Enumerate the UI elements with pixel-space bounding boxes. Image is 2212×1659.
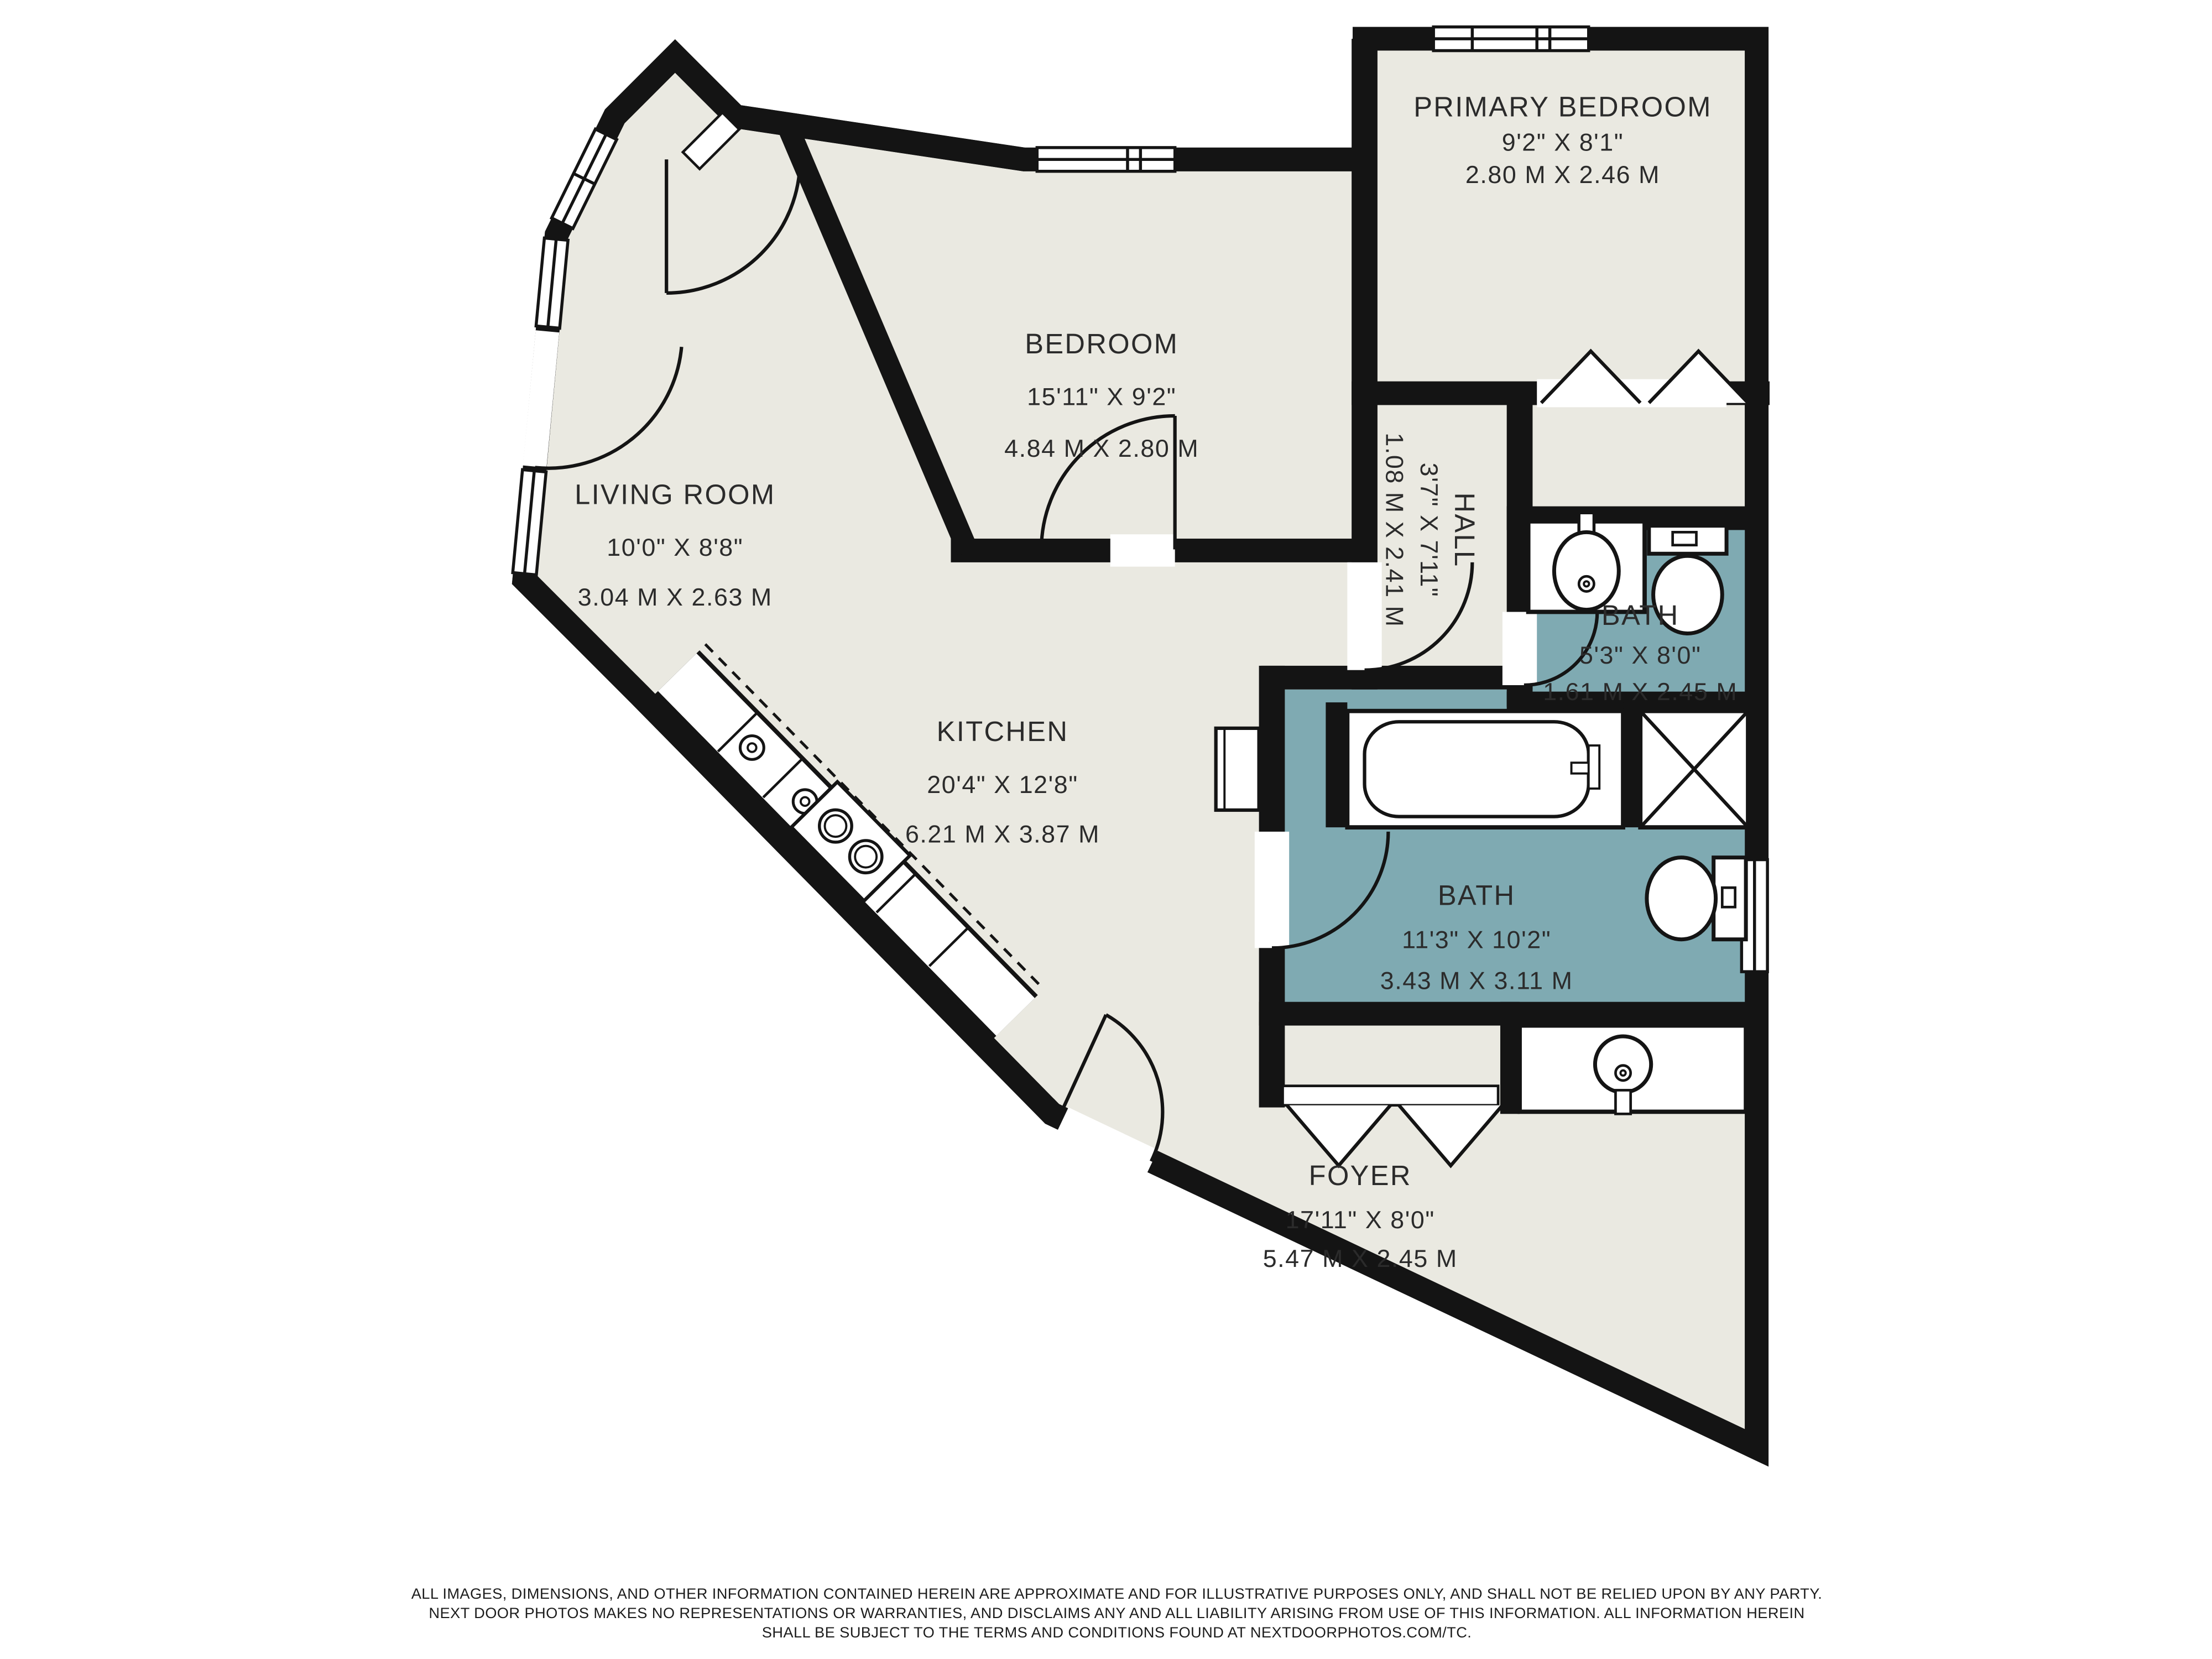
svg-text:15'11" X 9'2": 15'11" X 9'2" <box>1027 383 1176 410</box>
svg-text:9'2" X 8'1": 9'2" X 8'1" <box>1502 129 1624 156</box>
disclaimer: ALL IMAGES, DIMENSIONS, AND OTHER INFORM… <box>411 1585 1823 1641</box>
svg-text:20'4" X 12'8": 20'4" X 12'8" <box>927 771 1078 799</box>
shower-icon <box>1640 711 1748 827</box>
svg-text:HALL: HALL <box>1449 492 1480 567</box>
svg-text:SHALL BE SUBJECT TO THE TERMS: SHALL BE SUBJECT TO THE TERMS AND CONDIT… <box>762 1624 1472 1641</box>
sink-upper-bath-icon <box>1528 513 1645 612</box>
sink-foyer-icon <box>1520 1026 1746 1114</box>
svg-text:NEXT DOOR PHOTOS MAKES NO REPR: NEXT DOOR PHOTOS MAKES NO REPRESENTATION… <box>429 1604 1804 1621</box>
svg-text:2.80 M X 2.46 M: 2.80 M X 2.46 M <box>1465 161 1660 189</box>
svg-text:KITCHEN: KITCHEN <box>937 716 1069 747</box>
svg-text:3'7" X 7'11": 3'7" X 7'11" <box>1415 463 1443 598</box>
svg-text:4.84 M X 2.80 M: 4.84 M X 2.80 M <box>1004 435 1199 462</box>
svg-text:BEDROOM: BEDROOM <box>1025 328 1178 359</box>
appliance-icon <box>1216 728 1259 810</box>
svg-text:FOYER: FOYER <box>1309 1160 1412 1191</box>
bedroom-window-icon <box>1037 148 1175 171</box>
svg-text:3.43 M X 3.11 M: 3.43 M X 3.11 M <box>1380 967 1573 994</box>
svg-text:6.21 M X 3.87 M: 6.21 M X 3.87 M <box>905 820 1100 848</box>
svg-text:BATH: BATH <box>1601 599 1679 631</box>
svg-text:ALL IMAGES, DIMENSIONS, AND OT: ALL IMAGES, DIMENSIONS, AND OTHER INFORM… <box>411 1585 1823 1602</box>
page: PRIMARY BEDROOM 9'2" X 8'1" 2.80 M X 2.4… <box>0 0 2212 1659</box>
toilet-lower-bath-icon <box>1647 858 1746 940</box>
svg-text:17'11" X 8'0": 17'11" X 8'0" <box>1286 1206 1435 1234</box>
svg-text:11'3" X 10'2": 11'3" X 10'2" <box>1402 926 1551 953</box>
room-label-bedroom: BEDROOM 15'11" X 9'2" 4.84 M X 2.80 M <box>1004 328 1199 462</box>
primary-bedroom-window-icon <box>1433 27 1589 51</box>
svg-text:10'0" X 8'8": 10'0" X 8'8" <box>607 534 743 561</box>
svg-text:3.04 M X 2.63 M: 3.04 M X 2.63 M <box>578 583 773 611</box>
svg-text:1.61 M X 2.45 M: 1.61 M X 2.45 M <box>1543 678 1738 706</box>
svg-text:BATH: BATH <box>1438 879 1516 911</box>
svg-text:LIVING ROOM: LIVING ROOM <box>575 479 775 510</box>
svg-text:5'3" X 8'0": 5'3" X 8'0" <box>1579 641 1701 669</box>
svg-text:1.08 M X 2.41 M: 1.08 M X 2.41 M <box>1380 432 1408 627</box>
svg-text:PRIMARY BEDROOM: PRIMARY BEDROOM <box>1413 91 1712 122</box>
floor-plan: PRIMARY BEDROOM 9'2" X 8'1" 2.80 M X 2.4… <box>0 0 2212 1659</box>
svg-text:5.47 M X 2.45 M: 5.47 M X 2.45 M <box>1263 1245 1458 1272</box>
bathtub-icon <box>1347 711 1623 827</box>
